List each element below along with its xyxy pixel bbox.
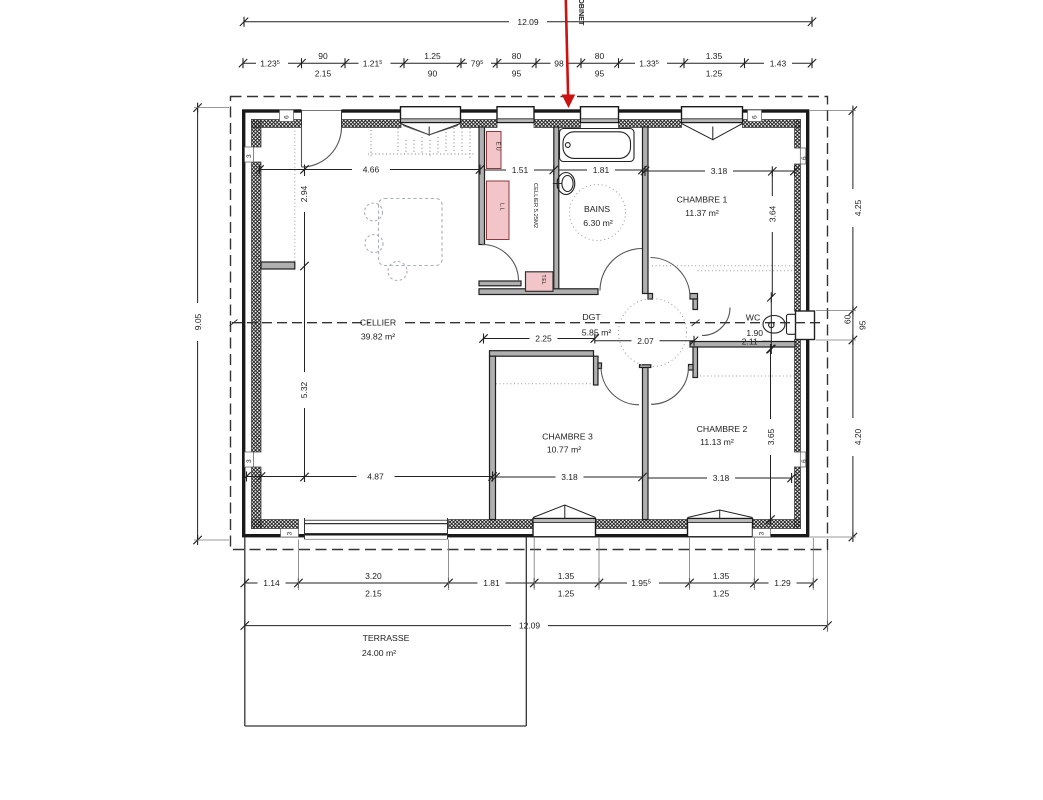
svg-text:2.94: 2.94 — [299, 185, 309, 202]
svg-text:4.20: 4.20 — [853, 428, 863, 445]
svg-text:3.65: 3.65 — [766, 428, 776, 445]
svg-text:4.25: 4.25 — [853, 199, 863, 216]
svg-text:6.30 m²: 6.30 m² — [583, 218, 613, 228]
svg-text:3: 3 — [287, 532, 294, 536]
svg-text:CELLIER 5.25M2: CELLIER 5.25M2 — [532, 183, 538, 228]
svg-text:5.32: 5.32 — [299, 381, 309, 398]
svg-text:90: 90 — [428, 69, 438, 79]
svg-text:3.64: 3.64 — [768, 205, 778, 222]
svg-text:3: 3 — [759, 532, 766, 536]
svg-text:4.87: 4.87 — [367, 472, 384, 482]
svg-text:95: 95 — [857, 320, 867, 330]
svg-text:DGT: DGT — [582, 312, 601, 322]
svg-text:T.EL: T.EL — [540, 275, 546, 285]
svg-text:6: 6 — [284, 115, 291, 119]
svg-text:WC: WC — [746, 313, 760, 323]
svg-text:6: 6 — [752, 115, 759, 119]
svg-text:1.25: 1.25 — [706, 69, 723, 79]
svg-text:95: 95 — [595, 69, 605, 79]
svg-text:6: 6 — [801, 156, 808, 160]
svg-text:CHAMBRE 2: CHAMBRE 2 — [697, 424, 748, 434]
svg-text:3.18: 3.18 — [711, 166, 728, 176]
svg-text:BAINS: BAINS — [584, 204, 610, 214]
svg-text:80: 80 — [512, 51, 522, 61]
svg-text:6: 6 — [801, 459, 808, 463]
svg-text:60: 60 — [842, 314, 852, 324]
svg-text:2.25: 2.25 — [535, 334, 552, 344]
svg-text:2.11: 2.11 — [742, 336, 758, 346]
svg-text:1.29: 1.29 — [774, 578, 791, 588]
svg-text:1.35: 1.35 — [558, 571, 575, 581]
svg-text:11.37 m²: 11.37 m² — [685, 208, 719, 218]
svg-text:1.81: 1.81 — [593, 165, 610, 175]
svg-text:1.25: 1.25 — [713, 588, 730, 598]
svg-text:1.81: 1.81 — [483, 578, 500, 588]
svg-text:3: 3 — [246, 459, 253, 463]
svg-text:2.15: 2.15 — [365, 588, 382, 598]
svg-text:24.00 m²: 24.00 m² — [362, 648, 396, 658]
svg-text:3: 3 — [246, 154, 253, 158]
svg-text:95: 95 — [512, 69, 522, 79]
svg-text:CHAMBRE 3: CHAMBRE 3 — [542, 432, 593, 442]
svg-text:1.35: 1.35 — [706, 51, 723, 61]
svg-text:80: 80 — [595, 51, 605, 61]
svg-text:3.18: 3.18 — [561, 472, 578, 482]
svg-text:E.U: E.U — [495, 142, 501, 151]
svg-text:1.43: 1.43 — [770, 58, 787, 68]
svg-text:11.13 m²: 11.13 m² — [700, 437, 734, 447]
svg-text:10.77 m²: 10.77 m² — [547, 445, 581, 455]
svg-text:CELLIER: CELLIER — [360, 318, 396, 328]
svg-text:3.20: 3.20 — [365, 571, 382, 581]
svg-text:3.18: 3.18 — [713, 473, 730, 483]
svg-text:1.14: 1.14 — [263, 578, 280, 588]
svg-text:CHAMBRE 1: CHAMBRE 1 — [677, 195, 728, 205]
svg-text:1.35: 1.35 — [713, 571, 730, 581]
svg-text:98: 98 — [554, 58, 564, 68]
svg-text:ROBINET: ROBINET — [577, 0, 586, 26]
svg-text:12.09: 12.09 — [517, 17, 539, 27]
svg-text:9.05: 9.05 — [193, 313, 203, 330]
svg-text:90: 90 — [318, 51, 328, 61]
svg-text:39.82 m²: 39.82 m² — [361, 332, 395, 342]
svg-text:1.25: 1.25 — [558, 588, 575, 598]
svg-text:4.66: 4.66 — [363, 165, 380, 175]
svg-text:1.51: 1.51 — [512, 165, 529, 175]
svg-text:TERRASSE: TERRASSE — [363, 633, 410, 643]
svg-text:1.25: 1.25 — [424, 51, 441, 61]
svg-text:L.L: L.L — [499, 203, 505, 211]
svg-text:2.15: 2.15 — [315, 69, 332, 79]
svg-text:2.07: 2.07 — [637, 336, 654, 346]
svg-text:12.09: 12.09 — [519, 621, 541, 631]
